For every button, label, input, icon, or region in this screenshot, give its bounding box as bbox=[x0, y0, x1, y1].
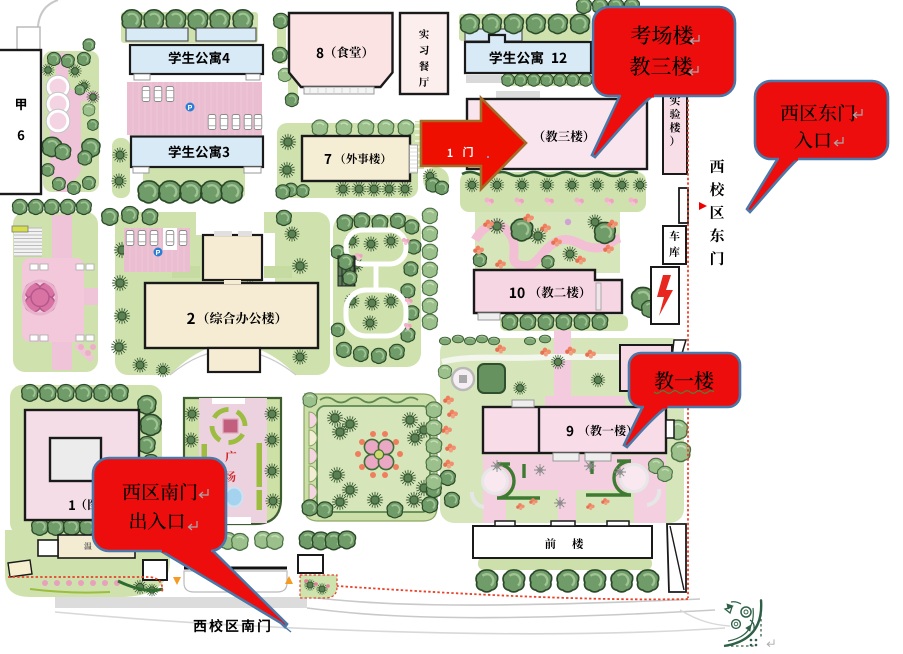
svg-text:P: P bbox=[188, 105, 193, 112]
svg-text:P: P bbox=[156, 250, 161, 257]
